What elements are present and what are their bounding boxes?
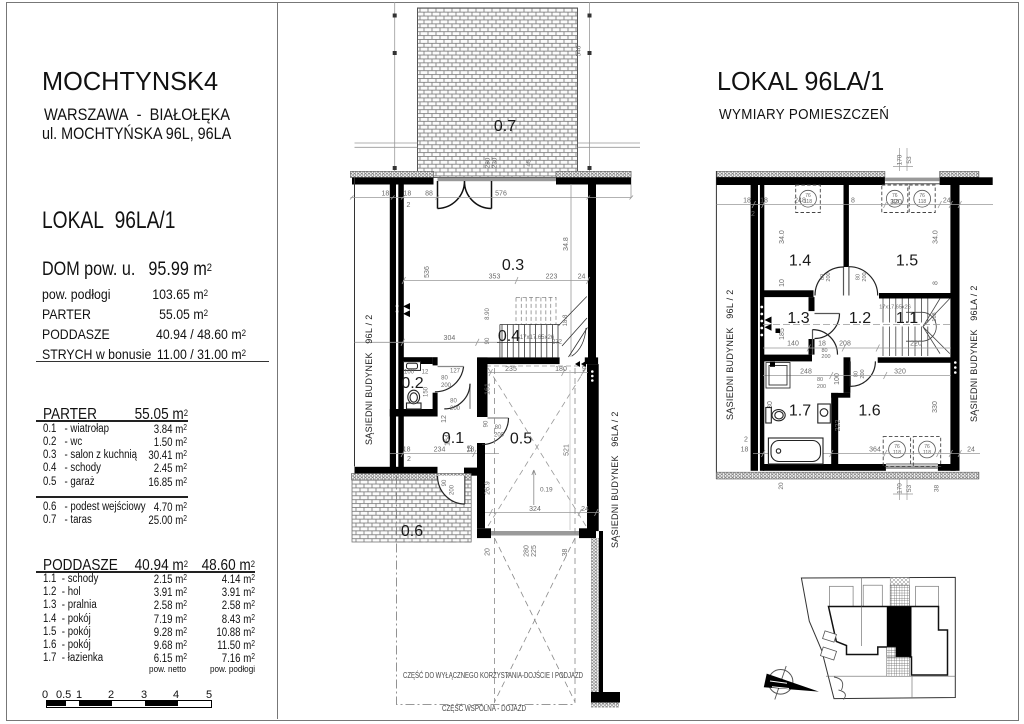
svg-text:364: 364 [869, 447, 881, 454]
svg-text:200: 200 [826, 272, 832, 281]
svg-text:18.8: 18.8 [563, 314, 569, 326]
svg-text:45: 45 [526, 159, 533, 167]
svg-text:2: 2 [407, 202, 411, 209]
svg-text:20: 20 [778, 482, 785, 490]
svg-text:222: 222 [835, 420, 842, 432]
svg-text:320: 320 [890, 199, 902, 206]
svg-text:1.4: 1.4 [789, 253, 811, 270]
svg-text:1.7: 1.7 [789, 403, 811, 420]
svg-text:248: 248 [794, 198, 806, 205]
svg-text:521: 521 [564, 444, 571, 456]
svg-text:SĄSIEDNI BUDYNEK 96LA / 2: SĄSIEDNI BUDYNEK 96LA / 2 [969, 285, 979, 422]
svg-text:330: 330 [932, 401, 939, 413]
svg-text:0.19: 0.19 [540, 487, 553, 494]
svg-text:18: 18 [818, 341, 826, 348]
svg-text:0.2: 0.2 [401, 375, 423, 392]
svg-text:10: 10 [779, 279, 786, 287]
svg-text:150: 150 [424, 386, 430, 397]
svg-text:12: 12 [441, 415, 448, 423]
svg-text:38: 38 [562, 549, 569, 557]
svg-text:0.7: 0.7 [494, 118, 516, 135]
svg-text:24: 24 [943, 198, 951, 205]
svg-text:540: 540 [576, 45, 583, 56]
svg-text:200: 200 [862, 272, 868, 281]
svg-text:24: 24 [581, 506, 589, 513]
svg-text:223: 223 [546, 273, 558, 280]
svg-text:2: 2 [407, 456, 411, 463]
svg-text:18: 18 [741, 447, 749, 454]
svg-text:188: 188 [932, 312, 938, 321]
svg-text:280: 280 [524, 545, 531, 557]
svg-text:200: 200 [450, 484, 456, 495]
svg-text:1.5: 1.5 [896, 253, 918, 270]
svg-text:140: 140 [787, 341, 799, 348]
svg-text:100: 100 [404, 370, 415, 376]
svg-text:320: 320 [894, 369, 906, 376]
svg-text:80: 80 [854, 371, 860, 377]
svg-text:SĄSIEDNI BUDYNEK 96L / 2: SĄSIEDNI BUDYNEK 96L / 2 [364, 314, 374, 445]
svg-text:CZĘŚĆ DO WYŁĄCZNEGO KORZYSTANI: CZĘŚĆ DO WYŁĄCZNEGO KORZYSTANIA-DOJŚCIE … [403, 671, 583, 680]
svg-text:80: 80 [817, 377, 823, 383]
svg-text:161: 161 [485, 383, 492, 395]
svg-text:280: 280 [485, 157, 492, 168]
svg-text:0.6: 0.6 [401, 523, 423, 540]
svg-text:80: 80 [495, 425, 502, 431]
svg-text:90: 90 [485, 337, 491, 344]
svg-text:220: 220 [910, 341, 922, 348]
svg-text:53: 53 [906, 156, 913, 164]
svg-text:88: 88 [425, 191, 433, 198]
svg-text:53: 53 [906, 485, 913, 493]
svg-text:353: 353 [489, 273, 501, 280]
svg-text:18: 18 [760, 198, 768, 205]
svg-text:1.1: 1.1 [896, 310, 918, 327]
svg-text:324: 324 [529, 506, 541, 513]
svg-text:235: 235 [505, 366, 517, 373]
svg-text:8: 8 [851, 198, 855, 205]
svg-text:118: 118 [893, 450, 901, 456]
svg-text:180: 180 [555, 366, 567, 373]
svg-text:24: 24 [578, 273, 586, 280]
svg-text:SĄSIEDNI BUDYNEK 96LA / 2: SĄSIEDNI BUDYNEK 96LA / 2 [610, 411, 620, 548]
svg-text:0.5: 0.5 [510, 431, 532, 448]
svg-text:536: 536 [424, 266, 431, 278]
svg-text:248: 248 [800, 369, 812, 376]
svg-text:17x17.65x26: 17x17.65x26 [879, 305, 911, 311]
svg-text:200: 200 [821, 354, 830, 360]
svg-text:SĄSIEDNI BUDYNEK 96L / 2: SĄSIEDNI BUDYNEK 96L / 2 [725, 289, 735, 420]
svg-text:12: 12 [422, 370, 429, 376]
svg-text:234: 234 [434, 447, 446, 454]
svg-text:0.4: 0.4 [498, 328, 520, 345]
svg-text:200: 200 [494, 433, 505, 439]
svg-text:18: 18 [403, 447, 411, 454]
svg-text:200: 200 [441, 383, 452, 389]
svg-text:170: 170 [897, 483, 904, 494]
svg-text:18: 18 [467, 445, 474, 453]
svg-text:34.0: 34.0 [933, 230, 940, 244]
svg-text:8: 8 [933, 281, 940, 285]
svg-text:208: 208 [839, 341, 851, 348]
svg-text:CZĘŚĆ WSPÓLNA - DOJAZD: CZĘŚĆ WSPÓLNA - DOJAZD [442, 704, 526, 713]
svg-text:18: 18 [743, 198, 751, 205]
svg-text:100: 100 [834, 373, 841, 385]
svg-text:17x17.65x26: 17x17.65x26 [520, 335, 555, 341]
svg-text:127: 127 [450, 369, 461, 375]
svg-text:8.90: 8.90 [485, 308, 491, 320]
svg-text:170: 170 [897, 154, 904, 165]
svg-text:90: 90 [484, 420, 490, 427]
svg-text:80: 80 [450, 399, 457, 405]
svg-text:80: 80 [856, 274, 862, 280]
svg-text:34.8: 34.8 [563, 237, 570, 251]
svg-text:1.2: 1.2 [849, 310, 871, 327]
svg-text:0.3: 0.3 [502, 257, 524, 274]
svg-text:200: 200 [450, 406, 461, 412]
svg-text:38: 38 [934, 485, 941, 493]
svg-text:118: 118 [923, 450, 931, 456]
svg-text:225: 225 [531, 545, 538, 557]
svg-text:2: 2 [744, 437, 748, 444]
svg-text:304: 304 [444, 335, 456, 342]
svg-text:18: 18 [382, 191, 390, 198]
svg-text:2: 2 [751, 211, 755, 218]
svg-text:26.9: 26.9 [485, 481, 492, 495]
svg-text:272: 272 [552, 340, 563, 346]
svg-text:185: 185 [779, 328, 786, 340]
svg-text:200: 200 [817, 384, 826, 390]
svg-text:230: 230 [492, 157, 499, 168]
svg-text:20: 20 [485, 548, 492, 556]
svg-text:18: 18 [404, 191, 412, 198]
svg-text:90: 90 [442, 479, 448, 486]
svg-text:164: 164 [445, 434, 452, 446]
svg-text:1.3: 1.3 [787, 310, 809, 327]
svg-text:1.6: 1.6 [858, 403, 880, 420]
svg-text:24: 24 [967, 447, 975, 454]
svg-text:80: 80 [441, 376, 448, 382]
svg-text:576: 576 [495, 191, 507, 198]
svg-text:200: 200 [860, 369, 866, 378]
svg-text:34.0: 34.0 [779, 230, 786, 244]
